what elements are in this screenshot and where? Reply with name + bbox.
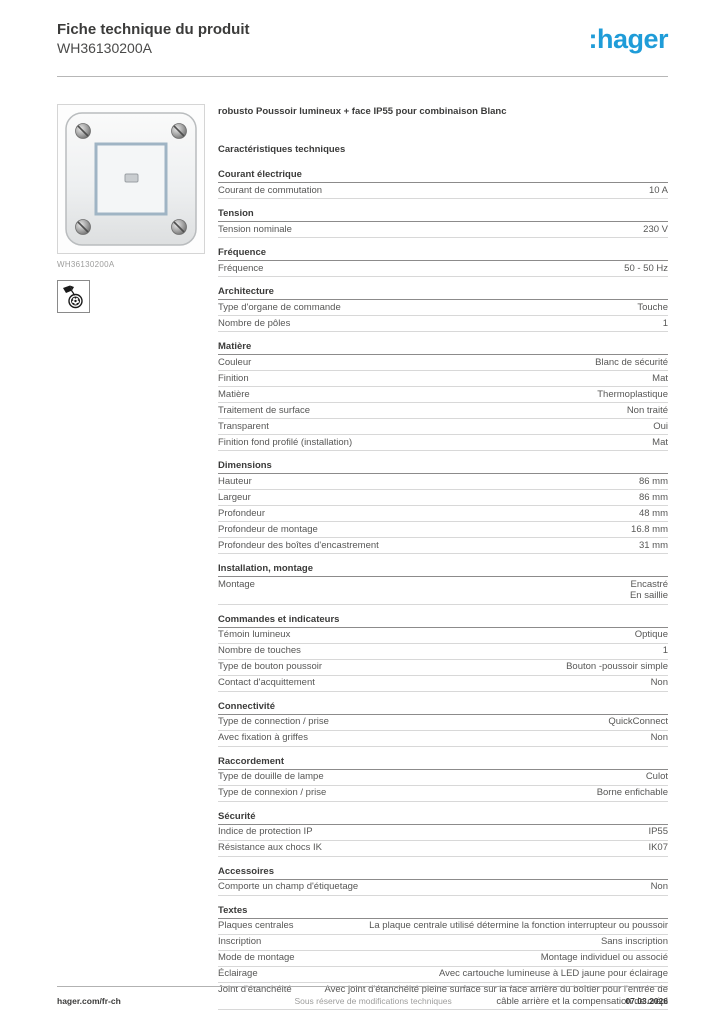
spec-value: Non	[332, 732, 668, 744]
spec-section-title: Raccordement	[218, 756, 668, 770]
spec-value: Blanc de sécurité	[275, 357, 668, 369]
spec-label: Type de connexion / prise	[218, 787, 326, 799]
spec-section: RaccordementType de douille de lampeCulo…	[218, 756, 668, 802]
table-row: Fréquence50 - 50 Hz	[218, 261, 668, 277]
hager-logo: :hager	[588, 24, 668, 54]
spec-label: Montage	[218, 579, 255, 591]
spec-section: SécuritéIndice de protection IPIP55Résis…	[218, 811, 668, 857]
spec-label: Matière	[218, 389, 250, 401]
content-area: WH36130200A robusto Poussoir l	[57, 104, 668, 1010]
table-row: Profondeur de montage16.8 mm	[218, 522, 668, 538]
table-row: TransparentOui	[218, 419, 668, 435]
table-row: Type de connection / priseQuickConnect	[218, 715, 668, 731]
spec-sections: Courant électriqueCourant de commutation…	[218, 169, 668, 1010]
table-row: Courant de commutation10 A	[218, 183, 668, 199]
footer-disclaimer: Sous réserve de modifications techniques	[294, 996, 451, 1006]
spec-value: 230 V	[316, 224, 668, 236]
footer-date: 07.03.2026	[625, 996, 668, 1006]
spec-label: Couleur	[218, 357, 251, 369]
spec-label: Type de douille de lampe	[218, 771, 324, 783]
spec-value: 10 A	[346, 185, 668, 197]
spec-value: Optique	[314, 629, 668, 641]
table-row: Type d'organe de commandeTouche	[218, 300, 668, 316]
spec-value: 16.8 mm	[342, 524, 668, 536]
table-row: Hauteur86 mm	[218, 474, 668, 490]
table-row: Profondeur des boîtes d'encastrement31 m…	[218, 538, 668, 554]
paint-can-wheel-glyph	[61, 284, 86, 309]
table-row: Résistance aux chocs IKIK07	[218, 841, 668, 857]
spec-section: TensionTension nominale230 V	[218, 208, 668, 238]
spec-label: Nombre de touches	[218, 645, 301, 657]
spec-label: Tension nominale	[218, 224, 292, 236]
spec-value: IK07	[346, 842, 668, 854]
product-media-column: WH36130200A	[57, 104, 205, 1010]
table-row: MontageEncastré En saillie	[218, 577, 668, 605]
table-row: Plaques centralesLa plaque centrale util…	[218, 919, 668, 935]
table-row: MatièreThermoplastique	[218, 387, 668, 403]
spec-section-title: Textes	[218, 905, 668, 919]
spec-section-title: Commandes et indicateurs	[218, 614, 668, 628]
spec-label: Type de connection / prise	[218, 716, 329, 728]
table-row: Mode de montageMontage individuel ou ass…	[218, 951, 668, 967]
table-row: Profondeur48 mm	[218, 506, 668, 522]
table-row: Type de connexion / priseBorne enfichabl…	[218, 786, 668, 802]
spec-label: Plaques centrales	[218, 920, 294, 932]
table-row: Tension nominale230 V	[218, 222, 668, 238]
product-image-caption: WH36130200A	[57, 260, 205, 269]
spec-label: Contact d'acquittement	[218, 677, 315, 689]
characteristics-heading: Caractéristiques techniques	[218, 144, 668, 155]
spec-section-title: Architecture	[218, 286, 668, 300]
spec-section-title: Connectivité	[218, 701, 668, 715]
page-title: Fiche technique du produit	[57, 20, 250, 39]
spec-label: Indice de protection IP	[218, 826, 313, 838]
spec-label: Profondeur de montage	[218, 524, 318, 536]
spec-section: AccessoiresComporte un champ d'étiquetag…	[218, 866, 668, 896]
table-row: Type de douille de lampeCulot	[218, 770, 668, 786]
table-row: CouleurBlanc de sécurité	[218, 355, 668, 371]
spec-section-title: Courant électrique	[218, 169, 668, 183]
spec-section: Commandes et indicateursTémoin lumineuxO…	[218, 614, 668, 692]
push-button-illustration	[63, 110, 199, 248]
spec-value: Sans inscription	[285, 936, 668, 948]
spec-label: Type de bouton poussoir	[218, 661, 322, 673]
spec-label: Résistance aux chocs IK	[218, 842, 322, 854]
spec-value: IP55	[337, 826, 668, 838]
spec-value: 1	[314, 318, 668, 330]
spec-label: Finition fond profilé (installation)	[218, 437, 352, 449]
table-row: Traitement de surfaceNon traité	[218, 403, 668, 419]
table-row: Avec fixation à griffesNon	[218, 731, 668, 747]
spec-value: 31 mm	[403, 540, 668, 552]
spec-label: Nombre de pôles	[218, 318, 290, 330]
spec-value: Non traité	[334, 405, 668, 417]
spec-value: Avec cartouche lumineuse à LED jaune pou…	[282, 968, 668, 980]
table-row: Finition fond profilé (installation)Mat	[218, 435, 668, 451]
spec-value: Non	[339, 677, 668, 689]
spec-label: Type d'organe de commande	[218, 302, 341, 314]
table-row: Comporte un champ d'étiquetageNon	[218, 880, 668, 896]
spec-section-title: Fréquence	[218, 247, 668, 261]
table-row: ÉclairageAvec cartouche lumineuse à LED …	[218, 967, 668, 983]
spec-value: Touche	[365, 302, 668, 314]
spec-section-title: Installation, montage	[218, 563, 668, 577]
spec-value: La plaque centrale utilisé détermine la …	[318, 920, 668, 932]
table-row: Largeur86 mm	[218, 490, 668, 506]
spec-section: ConnectivitéType de connection / priseQu…	[218, 701, 668, 747]
footer-website-link[interactable]: hager.com/fr-ch	[57, 996, 121, 1006]
spec-label: Finition	[218, 373, 249, 385]
spec-label: Fréquence	[218, 263, 263, 275]
spec-value: 48 mm	[289, 508, 668, 520]
spec-value: Mat	[376, 437, 668, 449]
page-footer: hager.com/fr-ch Sous réserve de modifica…	[57, 986, 668, 1006]
spec-label: Profondeur des boîtes d'encastrement	[218, 540, 379, 552]
paintable-surface-icon	[57, 280, 90, 313]
spec-value: 86 mm	[276, 476, 668, 488]
spec-section-title: Accessoires	[218, 866, 668, 880]
table-row: Témoin lumineuxOptique	[218, 628, 668, 644]
spec-label: Mode de montage	[218, 952, 295, 964]
table-row: Nombre de pôles1	[218, 316, 668, 332]
spec-value: Mat	[273, 373, 668, 385]
spec-section: MatièreCouleurBlanc de sécuritéFinitionM…	[218, 341, 668, 451]
spec-value: 86 mm	[275, 492, 668, 504]
spec-value: Non	[382, 881, 668, 893]
spec-label: Éclairage	[218, 968, 258, 980]
spec-label: Largeur	[218, 492, 251, 504]
datasheet-page: Fiche technique du produit WH36130200A :…	[0, 0, 724, 1024]
spec-label: Comporte un champ d'étiquetage	[218, 881, 358, 893]
spec-value: QuickConnect	[353, 716, 668, 728]
table-row: Type de bouton poussoirBouton -poussoir …	[218, 660, 668, 676]
header-text-block: Fiche technique du produit WH36130200A	[57, 20, 250, 57]
spec-value: Encastré En saillie	[279, 579, 668, 602]
spec-label: Courant de commutation	[218, 185, 322, 197]
spec-section: FréquenceFréquence50 - 50 Hz	[218, 247, 668, 277]
spec-section-title: Matière	[218, 341, 668, 355]
table-row: Indice de protection IPIP55	[218, 825, 668, 841]
spec-label: Profondeur	[218, 508, 265, 520]
product-title: robusto Poussoir lumineux + face IP55 po…	[218, 106, 668, 117]
spec-section-title: Tension	[218, 208, 668, 222]
table-row: Nombre de touches1	[218, 644, 668, 660]
product-image	[57, 104, 205, 254]
header-divider	[57, 76, 668, 77]
spec-value: Culot	[348, 771, 668, 783]
spec-value: Montage individuel ou associé	[319, 952, 668, 964]
table-row: InscriptionSans inscription	[218, 935, 668, 951]
spec-label: Avec fixation à griffes	[218, 732, 308, 744]
spec-value: Borne enfichable	[350, 787, 668, 799]
spec-section: Courant électriqueCourant de commutation…	[218, 169, 668, 199]
spec-value: Thermoplastique	[274, 389, 668, 401]
spec-label: Témoin lumineux	[218, 629, 290, 641]
spec-section: ArchitectureType d'organe de commandeTou…	[218, 286, 668, 332]
spec-column: robusto Poussoir lumineux + face IP55 po…	[218, 104, 668, 1010]
spec-section-title: Sécurité	[218, 811, 668, 825]
table-row: FinitionMat	[218, 371, 668, 387]
table-row: Contact d'acquittementNon	[218, 676, 668, 692]
spec-value: 50 - 50 Hz	[287, 263, 668, 275]
spec-section: DimensionsHauteur86 mmLargeur86 mmProfon…	[218, 460, 668, 554]
spec-label: Transparent	[218, 421, 269, 433]
spec-label: Hauteur	[218, 476, 252, 488]
spec-section: Installation, montageMontageEncastré En …	[218, 563, 668, 605]
spec-label: Traitement de surface	[218, 405, 310, 417]
spec-value: Oui	[293, 421, 668, 433]
spec-value: Bouton -poussoir simple	[346, 661, 668, 673]
spec-value: 1	[325, 645, 668, 657]
spec-section-title: Dimensions	[218, 460, 668, 474]
spec-label: Inscription	[218, 936, 261, 948]
header-product-code: WH36130200A	[57, 39, 250, 57]
page-header: Fiche technique du produit WH36130200A :…	[57, 20, 668, 57]
